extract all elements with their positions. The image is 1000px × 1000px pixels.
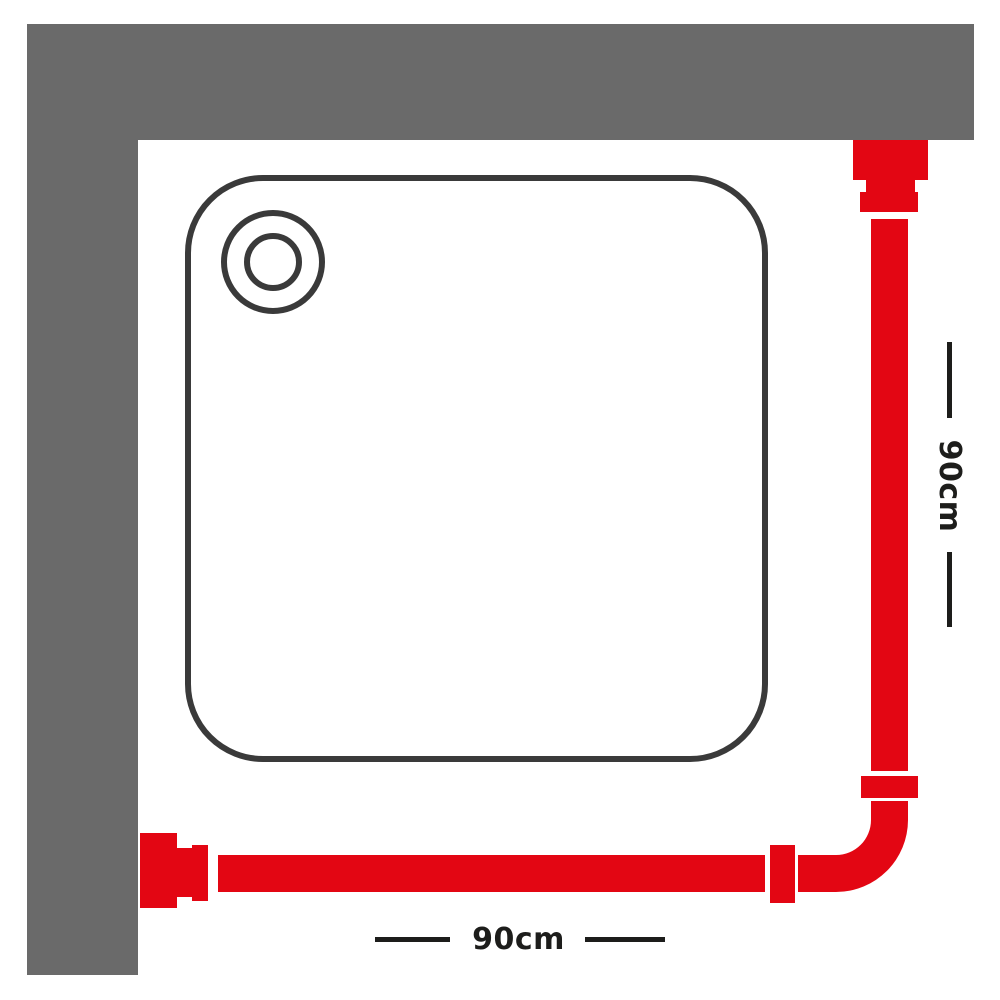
dimension-tick-right-bottom xyxy=(947,552,952,627)
rail-vertical-segment-icon xyxy=(871,219,908,771)
dimension-tick-bottom-left xyxy=(375,937,450,942)
dimension-tick-right-top xyxy=(947,342,952,418)
rail-horizontal-segment-icon xyxy=(218,855,765,892)
rail-coupler-vertical-icon xyxy=(861,776,918,798)
dimension-label-bottom: 90cm xyxy=(452,922,585,958)
wall-bracket-bottom-icon xyxy=(140,833,208,908)
rail-coupler-horizontal-icon xyxy=(770,845,795,903)
wall-bracket-top-icon xyxy=(853,140,928,212)
dimension-tick-bottom-right xyxy=(585,937,665,942)
rail-corner-curve-icon xyxy=(798,801,908,892)
l-shaped-curtain-rail-icon xyxy=(0,0,1000,1000)
diagram-canvas: 90cm 90cm xyxy=(0,0,1000,1000)
dimension-label-right: 90cm xyxy=(931,421,967,551)
